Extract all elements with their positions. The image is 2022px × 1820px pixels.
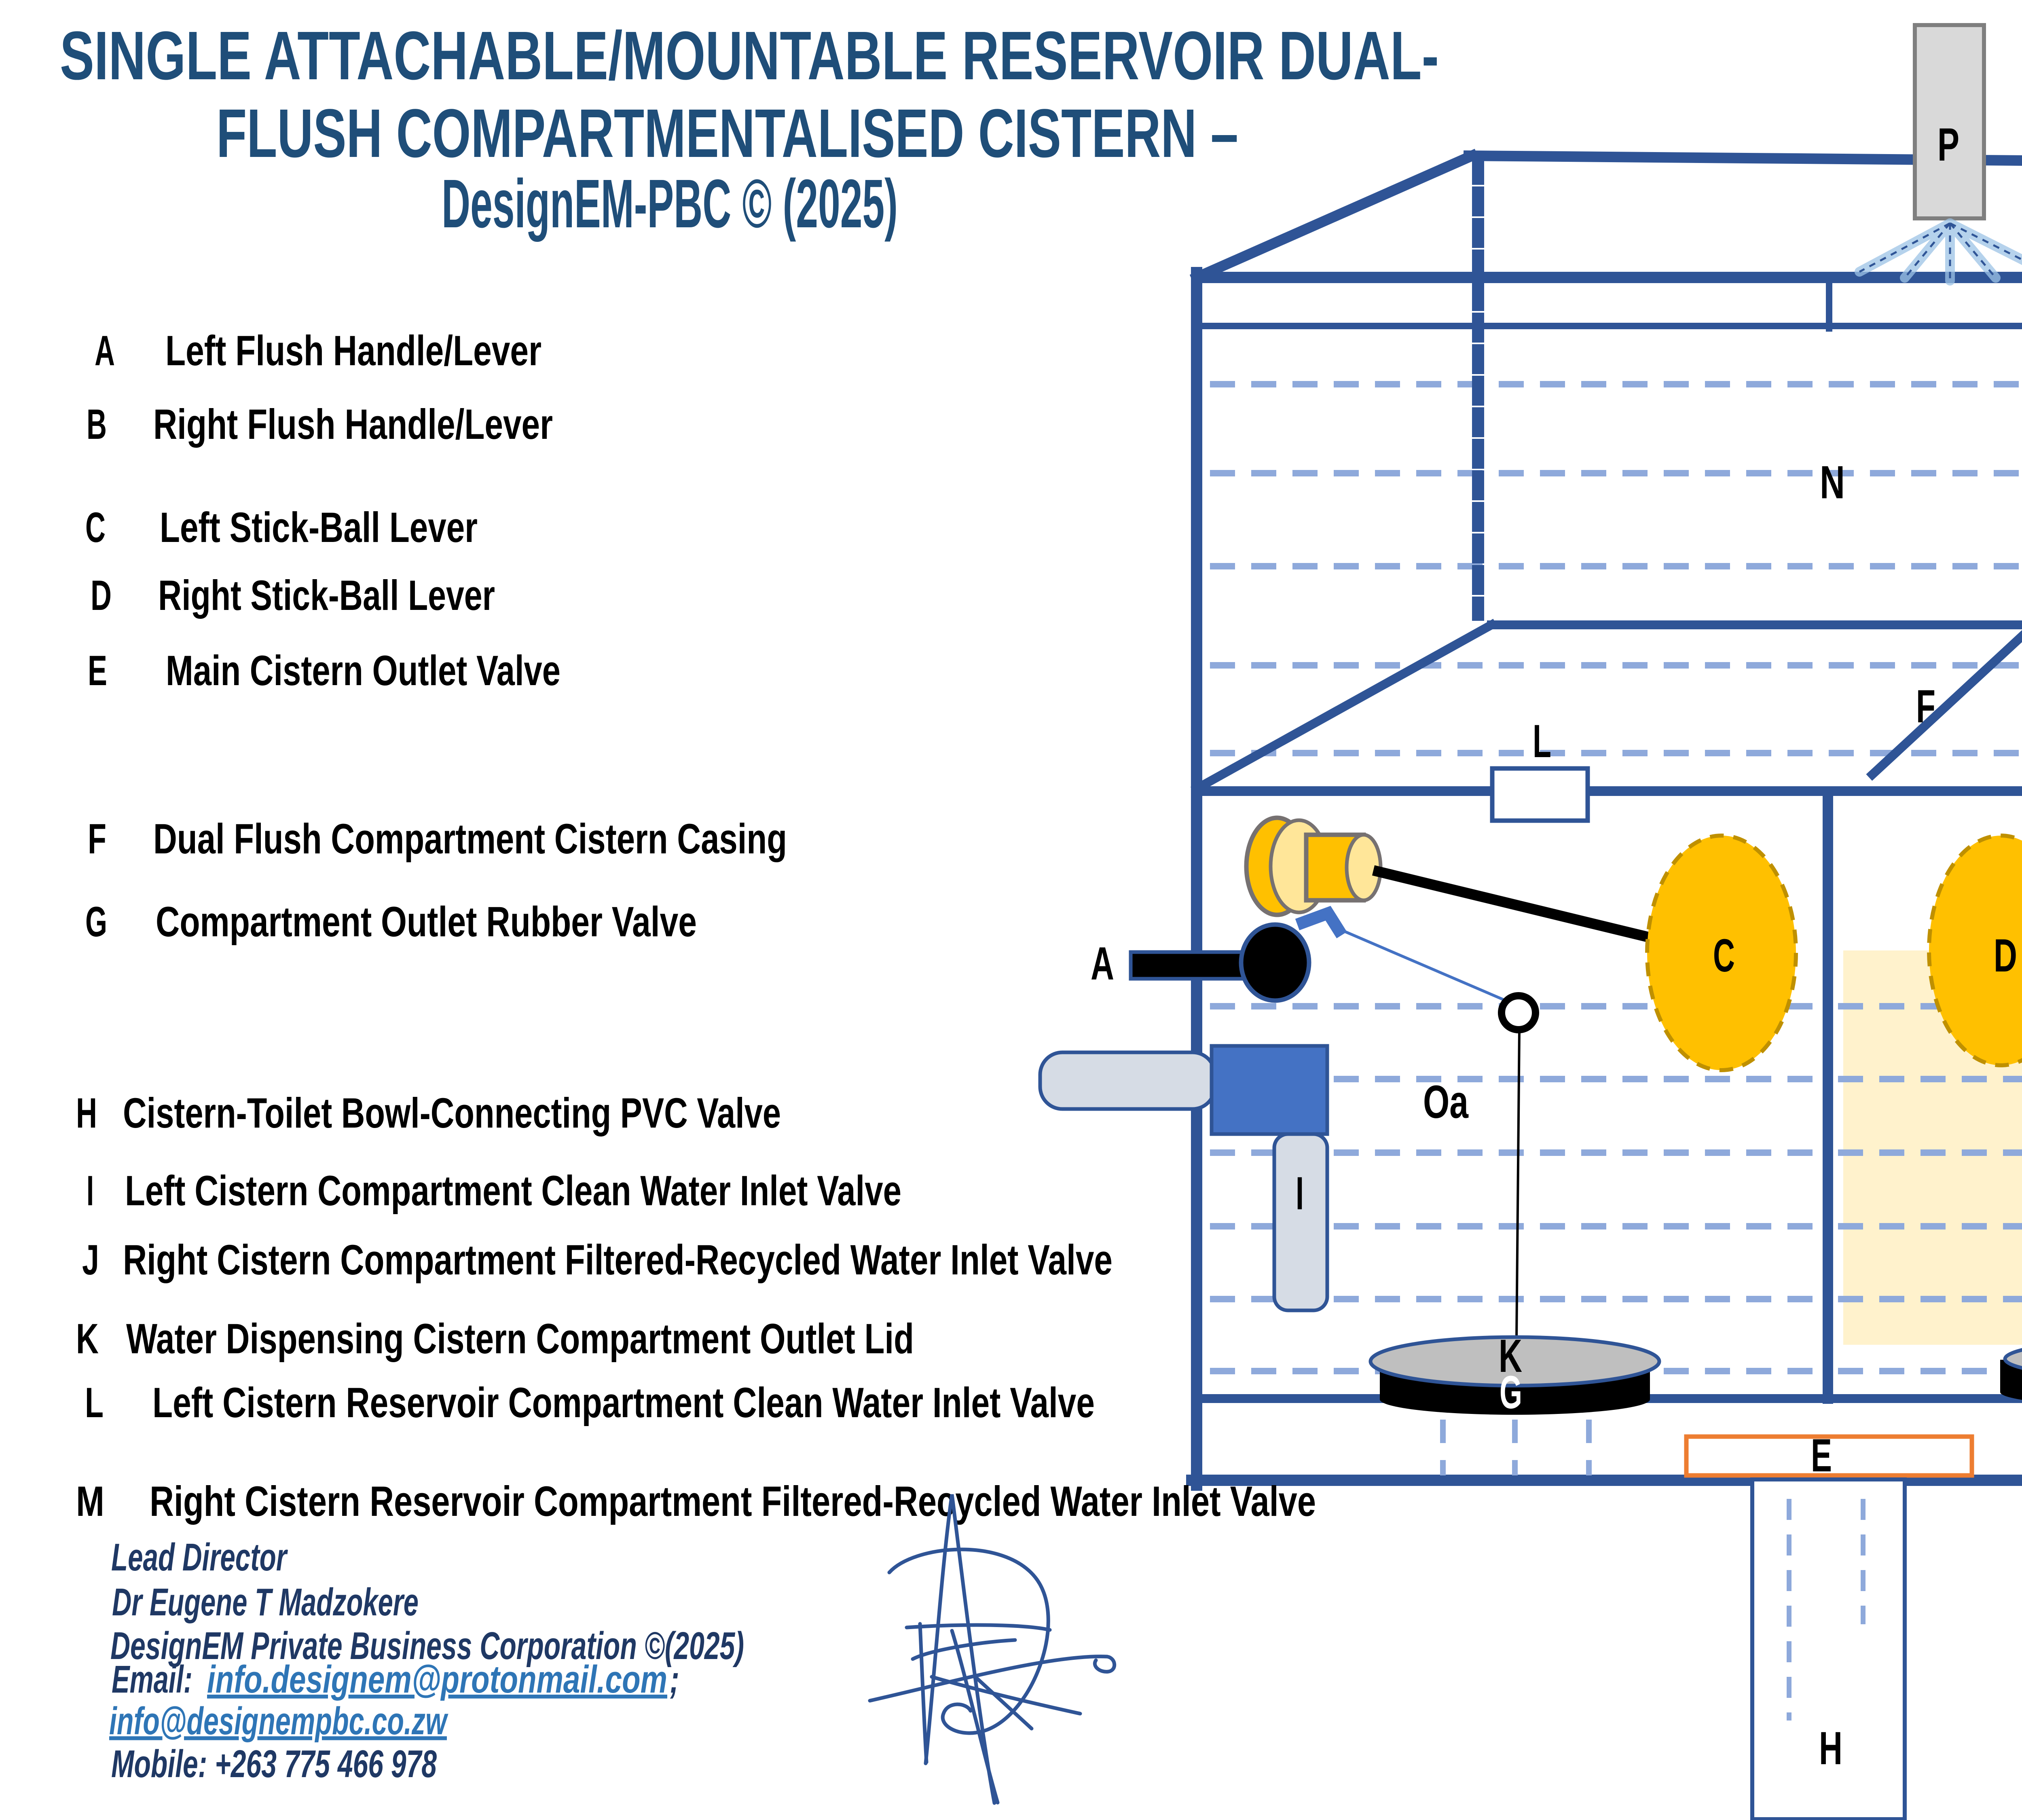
svg-text:F: F bbox=[88, 815, 106, 863]
svg-text:Email:: Email: bbox=[112, 1658, 192, 1701]
svg-text:H: H bbox=[1819, 1723, 1842, 1774]
svg-text:L: L bbox=[1533, 715, 1551, 767]
svg-text:N: N bbox=[1820, 457, 1845, 508]
svg-text:I: I bbox=[1296, 1168, 1304, 1219]
svg-text:G: G bbox=[1500, 1367, 1522, 1418]
svg-text:Lead Director: Lead Director bbox=[111, 1536, 288, 1579]
svg-text:info@designempbc.co.zw: info@designempbc.co.zw bbox=[109, 1699, 448, 1743]
svg-text:;: ; bbox=[670, 1658, 679, 1701]
svg-text:M: M bbox=[76, 1478, 104, 1525]
svg-text:E: E bbox=[1811, 1430, 1832, 1481]
svg-text:Right Cistern Compartment Filt: Right Cistern Compartment Filtered-Recyc… bbox=[123, 1236, 1113, 1284]
svg-text:Cistern-Toilet Bowl-Connecting: Cistern-Toilet Bowl-Connecting PVC Valve bbox=[123, 1090, 781, 1137]
svg-text:F: F bbox=[1916, 681, 1935, 732]
svg-text:Left Cistern Compartment Clean: Left Cistern Compartment Clean Water Inl… bbox=[125, 1167, 901, 1215]
svg-text:Mobile: +263 775 466 978: Mobile: +263 775 466 978 bbox=[111, 1742, 437, 1786]
svg-text:G: G bbox=[85, 898, 107, 946]
svg-text:SINGLE ATTACHABLE/MOUNTABLE RE: SINGLE ATTACHABLE/MOUNTABLE RESERVOIR DU… bbox=[60, 17, 1439, 94]
svg-text:I: I bbox=[87, 1167, 94, 1215]
svg-text:DesignEM-PBC © (2025): DesignEM-PBC © (2025) bbox=[442, 165, 898, 242]
svg-text:FLUSH COMPARTMENTALISED CISTER: FLUSH COMPARTMENTALISED CISTERN – bbox=[216, 95, 1238, 172]
svg-text:info.designem@protonmail.com: info.designem@protonmail.com bbox=[207, 1658, 667, 1701]
svg-text:A: A bbox=[95, 327, 115, 375]
svg-text:J: J bbox=[82, 1236, 99, 1284]
svg-text:Dual Flush Compartment Cistern: Dual Flush Compartment Cistern Casing bbox=[153, 815, 787, 863]
svg-text:B: B bbox=[87, 401, 107, 448]
svg-text:Oa: Oa bbox=[1423, 1076, 1469, 1128]
svg-text:K: K bbox=[76, 1315, 99, 1363]
svg-text:P: P bbox=[1937, 119, 1959, 171]
svg-text:L: L bbox=[85, 1379, 104, 1426]
svg-text:Right Stick-Ball Lever: Right Stick-Ball Lever bbox=[158, 572, 495, 619]
svg-text:Left Cistern Reservoir Compart: Left Cistern Reservoir Compartment Clean… bbox=[152, 1379, 1095, 1426]
svg-text:C: C bbox=[1713, 930, 1735, 982]
svg-text:Right Cistern Reservoir Compar: Right Cistern Reservoir Compartment Filt… bbox=[150, 1478, 1316, 1525]
svg-text:H: H bbox=[76, 1090, 97, 1137]
svg-text:Left Stick-Ball Lever: Left Stick-Ball Lever bbox=[160, 504, 478, 551]
svg-text:C: C bbox=[85, 504, 106, 551]
svg-text:Dr Eugene T Madzokere: Dr Eugene T Madzokere bbox=[112, 1581, 419, 1624]
svg-text:Right Flush Handle/Lever: Right Flush Handle/Lever bbox=[153, 401, 553, 448]
svg-text:D: D bbox=[91, 572, 112, 619]
svg-text:E: E bbox=[88, 647, 107, 694]
svg-text:Compartment Outlet Rubber Valv: Compartment Outlet Rubber Valve bbox=[156, 898, 697, 946]
svg-text:Main Cistern Outlet Valve: Main Cistern Outlet Valve bbox=[166, 647, 560, 694]
svg-text:Left Flush Handle/Lever: Left Flush Handle/Lever bbox=[165, 327, 541, 375]
svg-text:Water Dispensing Cistern Compa: Water Dispensing Cistern Compartment Out… bbox=[126, 1315, 914, 1363]
svg-text:D: D bbox=[1994, 930, 2017, 982]
svg-text:A: A bbox=[1091, 938, 1114, 990]
